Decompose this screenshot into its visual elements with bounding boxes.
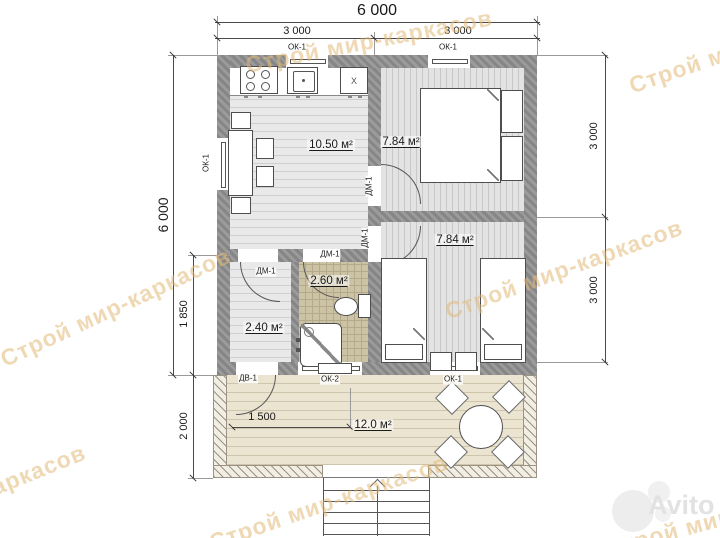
dining-table [228,130,253,196]
counter-tick [358,95,362,98]
dimension-line-right [605,55,606,362]
counter-tick [306,95,310,98]
single-bed-left-pillow [385,344,423,360]
dim-terrace-height: 2 000 [178,410,190,442]
window-top-bedroom-frame [432,59,468,64]
blanket-fold [482,328,494,340]
terrace-round-table [459,405,503,449]
extension-line [537,217,608,218]
watermark-text: Строй мир-каркасов [0,242,235,373]
double-bed-pillow-2 [501,136,523,181]
counter-tick [244,95,248,98]
blanket-fold [487,89,499,101]
dim-top-total: 6 000 [354,2,400,20]
bathroom-area-label: 2.60 м² [308,275,349,287]
terrace-wall-bottom-left [213,465,323,478]
dining-chair-top [231,112,251,129]
nightstand-1 [430,352,452,371]
watermark-text: Строй мир-каркасов [0,439,90,538]
dining-chair-right-2 [256,166,274,187]
double-bed-pillow-1 [501,90,523,133]
bedroom-bottom-area-label: 7.84 м² [434,234,475,246]
dining-chair-right-1 [256,138,274,159]
nightstand-2 [455,352,477,371]
wall-left [217,55,230,375]
watermark-text: Строй мир-каркасов [0,0,90,40]
kitchen-living-area-label: 10.50 м² [307,139,355,151]
shower-faucet [296,338,300,342]
hall-area-label: 2.40 м² [243,322,284,334]
door-label-bedroom-top: ДМ-1 [366,175,375,196]
bedroom-top-area-label: 7.84 м² [380,136,421,148]
dimension-line-terrace-inner [232,427,350,428]
blanket-fold [413,328,425,340]
window-label-terrace-ok1: ОК-1 [443,376,463,385]
door-label-bedroom-bottom: ДМ-1 [362,227,371,248]
window-label-top-bedroom: ОК-1 [438,44,458,53]
dim-right-top: 3 000 [588,120,600,152]
door-gap-hall [238,249,278,262]
wall-hall-bath-divider [291,262,299,362]
terrace-area-label: 12.0 м² [352,419,393,431]
watermark-text: Строй мир-каркасов [626,0,720,99]
shower-tray [300,323,342,367]
dim-right-bottom: 3 000 [588,274,600,306]
kitchen-sink [287,67,318,94]
door-label-hall: ДМ-1 [255,268,276,277]
toilet-bowl [334,297,358,316]
window-label-left: ОК-1 [203,153,212,173]
bathroom-cabinet [318,363,352,374]
entry-door-label: ДВ-1 [238,375,258,384]
toilet-tank [358,294,371,318]
extension-line [537,362,608,363]
blanket-fold [487,169,499,181]
dim-top-left-span: 3 000 [281,25,313,37]
cabinet-x-mark: X [351,76,357,86]
dim-left-total: 6 000 [155,195,171,234]
terrace-wall-left [213,375,227,478]
extension-line [350,388,351,427]
terrace-wall-right [523,375,537,478]
cabinet-x: X [340,67,368,94]
dimension-line-left-total [173,55,174,375]
counter-tick [296,95,300,98]
window-label-terrace-ok2: ОК-2 [320,376,340,385]
shower-faucet [296,348,300,352]
dimension-line-left-inner [193,255,194,478]
extension-line [537,55,608,56]
floor-plan-canvas: X 6 000 [0,0,720,538]
single-bed-right-pillow [484,344,522,360]
dining-chair-bottom [231,197,251,214]
dim-hall-height: 1 850 [178,298,190,330]
counter-tick [348,95,352,98]
counter-tick [258,95,262,98]
dim-terrace-inner: 1 500 [246,411,278,423]
window-left-frame [221,142,226,188]
door-label-bathroom: ДМ-1 [319,251,340,260]
wall-bedrooms-divider [381,211,524,222]
